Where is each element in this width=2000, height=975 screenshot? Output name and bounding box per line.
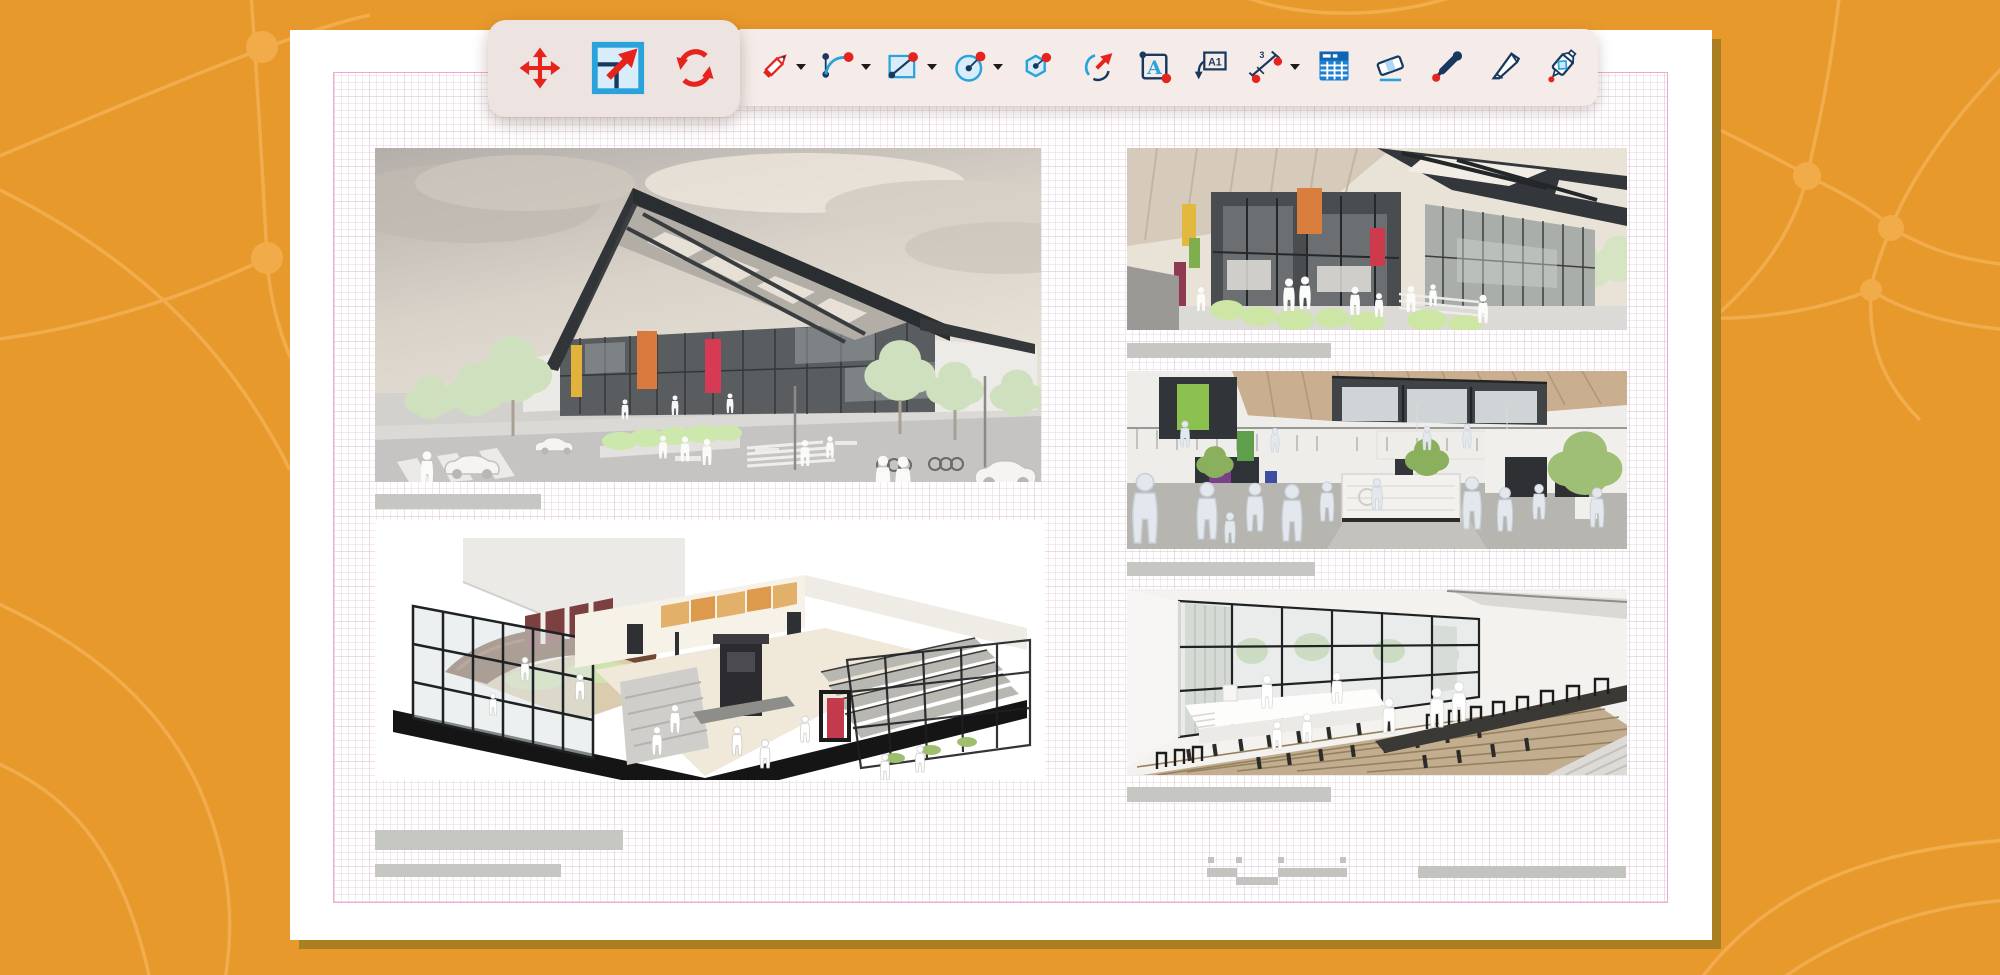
circle-icon: [952, 47, 990, 85]
dimension-dropdown-caret[interactable]: [1290, 64, 1300, 70]
text-label-tool-button[interactable]: A1: [1188, 43, 1234, 89]
caption-bar[interactable]: [375, 830, 623, 850]
footer-wide-bar: [1418, 866, 1626, 878]
revision-arc-icon: [1080, 47, 1118, 85]
svg-text:3: 3: [1259, 50, 1264, 60]
text-tool-button[interactable]: A: [1131, 43, 1177, 89]
image-exterior-plaza-render[interactable]: [1127, 148, 1627, 330]
text-label-icon: A1: [1192, 47, 1230, 85]
arc-icon: [819, 47, 857, 85]
caption-bar[interactable]: [375, 494, 541, 509]
arc-tool-button[interactable]: [815, 43, 861, 89]
polygon-tool-button[interactable]: [1015, 43, 1061, 89]
rotate-tool-button[interactable]: [669, 42, 721, 94]
caption-bar[interactable]: [1127, 343, 1331, 358]
table-icon: [1315, 47, 1353, 85]
pencil-icon: [756, 47, 794, 85]
document-page-canvas[interactable]: [290, 30, 1712, 940]
caption-bar[interactable]: [375, 864, 561, 877]
dimension-tool-button[interactable]: 3: [1242, 43, 1288, 89]
svg-text:A: A: [1146, 57, 1162, 79]
image-isometric-cutaway-render[interactable]: [375, 520, 1045, 780]
polygon-icon: [1019, 47, 1057, 85]
glue-tool-button[interactable]: [1539, 43, 1585, 89]
rectangle-dropdown-caret[interactable]: [927, 64, 937, 70]
caption-bar[interactable]: [1127, 562, 1315, 576]
pencil-line-tool-button[interactable]: [752, 43, 798, 89]
caption-bar[interactable]: [1127, 787, 1331, 802]
image-exterior-street-render[interactable]: [375, 148, 1041, 482]
svg-text:A1: A1: [1208, 56, 1222, 68]
knife-tool-button[interactable]: [1484, 43, 1530, 89]
table-tool-button[interactable]: [1311, 43, 1357, 89]
image-auditorium-render[interactable]: [1127, 589, 1627, 775]
text-icon: A: [1135, 47, 1173, 85]
image-atrium-interior-render[interactable]: [1127, 371, 1627, 549]
glue-icon: [1543, 47, 1581, 85]
scale-tool-button[interactable]: [587, 37, 649, 99]
circle-dropdown-caret[interactable]: [993, 64, 1003, 70]
eraser-tool-button[interactable]: [1368, 43, 1414, 89]
color-picker-tool-button[interactable]: [1426, 43, 1472, 89]
move-tool-button[interactable]: [514, 42, 566, 94]
circle-tool-button[interactable]: [948, 43, 994, 89]
move-icon: [517, 45, 563, 91]
revision-arc-tool-button[interactable]: [1076, 43, 1122, 89]
app-stage: A A1 3: [0, 0, 2000, 975]
eyedropper-icon: [1430, 47, 1468, 85]
arc-dropdown-caret[interactable]: [861, 64, 871, 70]
rectangle-tool-button[interactable]: [880, 43, 926, 89]
eraser-icon: [1372, 47, 1410, 85]
rectangle-icon: [884, 47, 922, 85]
pencil-dropdown-caret[interactable]: [796, 64, 806, 70]
knife-icon: [1488, 47, 1526, 85]
dimension-icon: 3: [1246, 47, 1284, 85]
scale-icon: [589, 39, 647, 97]
rotate-icon: [672, 45, 718, 91]
